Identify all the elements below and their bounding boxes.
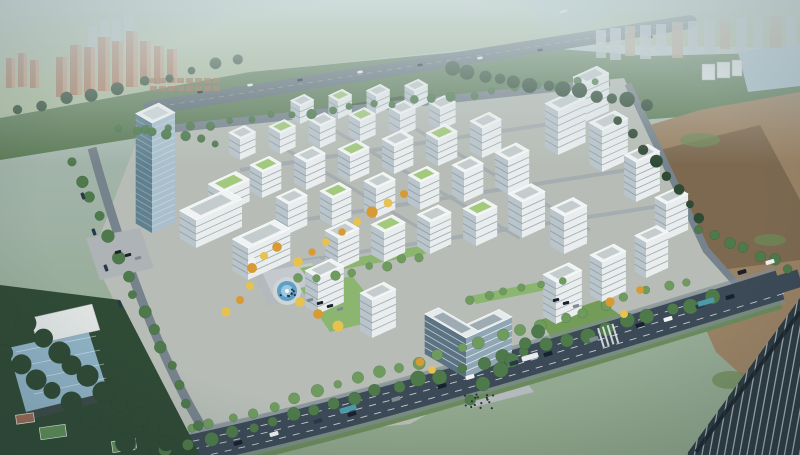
vignette-overlay — [0, 0, 800, 455]
aerial-rendering — [0, 0, 800, 455]
scene-svg — [0, 0, 800, 455]
